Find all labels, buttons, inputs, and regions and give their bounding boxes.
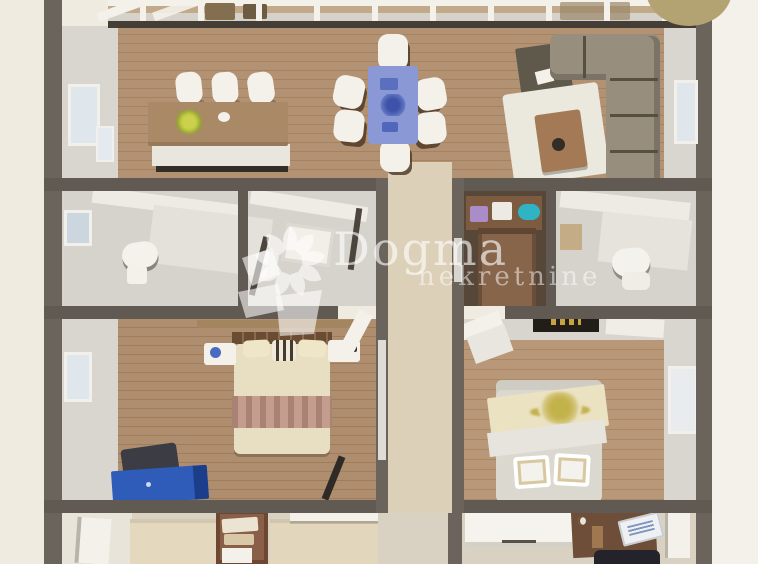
watermark-subtitle: nekretnine (418, 264, 601, 290)
watermark: Dogma nekretnine (0, 0, 758, 564)
floor-plan-render: Dogma nekretnine (0, 0, 758, 564)
